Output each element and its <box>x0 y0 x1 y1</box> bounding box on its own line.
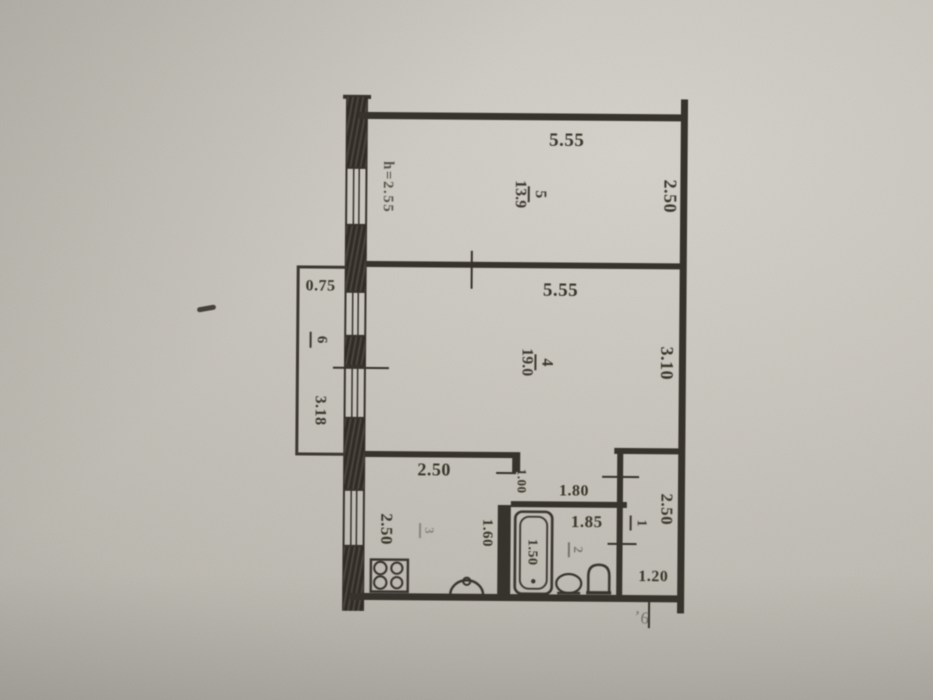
room5-number: 5 <box>528 186 548 202</box>
kitchen-sink-icon <box>448 577 485 596</box>
kitchen-window-icon <box>343 489 365 547</box>
ceiling-height-note: h=2.55 <box>380 161 395 213</box>
toilet-icon <box>584 562 613 595</box>
hallway-number: 1 <box>630 516 648 531</box>
balcony-wall-bottom <box>295 452 345 455</box>
dim-hallway-width: 1.20 <box>638 569 668 585</box>
vent-shaft <box>497 505 511 596</box>
dim-hallway-depth: 2.50 <box>658 493 675 525</box>
dim-kitchen-width: 2.50 <box>417 460 451 478</box>
room-tag-living4: 4 19.0 <box>517 348 554 376</box>
wall-pier <box>343 419 366 489</box>
stove-icon <box>369 558 409 593</box>
balcony-number: 6 <box>310 332 329 348</box>
dim-room5-width: 5.55 <box>549 131 584 150</box>
wall-right-exterior <box>677 99 688 613</box>
floor-plan: 5.55 2.50 h=2.55 5.55 3.10 0.75 3.18 2.5… <box>0 0 933 700</box>
window-icon <box>344 291 366 337</box>
handwritten-note: ’6 <box>633 607 652 629</box>
door-tick-hallway-upper <box>602 476 639 478</box>
wall-pier <box>345 226 368 291</box>
wall-hallway-top <box>614 448 678 455</box>
wall-pier <box>344 337 366 365</box>
room-tag-kitchen: 3 <box>419 523 436 538</box>
room-tag-balcony: 6 <box>310 332 329 348</box>
door-tick-room5-room4 <box>471 251 473 289</box>
wall-top-exterior <box>359 112 688 122</box>
dim-room5-depth: 2.50 <box>661 180 679 214</box>
room-tag-bathroom: 2 <box>568 542 585 557</box>
washbasin-icon <box>553 571 584 595</box>
dim-bathtub-length: 1.50 <box>524 539 538 566</box>
exterior-window-wall <box>342 95 368 611</box>
wall-pier <box>346 97 369 167</box>
wall-room5-room4-divider <box>367 261 680 269</box>
dim-balcony-length: 3.18 <box>311 396 327 426</box>
balcony-wall-left <box>295 265 299 455</box>
dimension-tick-passage <box>496 472 516 474</box>
room-tag-hallway: 1 <box>630 516 648 531</box>
dim-kitchen-depth: 2.50 <box>378 513 395 545</box>
window-icon <box>345 167 367 226</box>
wall-hallway-left <box>616 448 623 595</box>
room4-area: 19.0 <box>517 348 534 376</box>
wall-kitchen-top <box>365 451 519 458</box>
room-tag-living5: 5 13.9 <box>511 180 548 208</box>
wall-bathroom-top <box>511 501 627 508</box>
dimension-tick-balcony <box>333 367 389 369</box>
dim-bathroom-width: 1.80 <box>559 483 589 499</box>
dim-bathroom-inner: 1.85 <box>571 513 603 530</box>
kitchen-number: 3 <box>419 523 436 538</box>
dim-room4-width: 5.55 <box>543 281 578 300</box>
balcony-wall-top <box>297 265 347 268</box>
room5-area: 13.9 <box>511 180 528 208</box>
wall-pier <box>342 547 365 611</box>
dim-passage: 1.00 <box>515 469 528 494</box>
floorplan-photo: 5.55 2.50 h=2.55 5.55 3.10 0.75 3.18 2.5… <box>0 0 933 700</box>
balcony-door-window-icon <box>344 365 366 419</box>
bathroom-number: 2 <box>568 542 585 557</box>
dim-room4-depth: 3.10 <box>658 346 676 380</box>
room4-number: 4 <box>534 354 554 370</box>
dim-kitchen-inner: 1.60 <box>479 519 494 547</box>
dim-balcony-width: 0.75 <box>306 278 336 294</box>
door-tick-hallway-lower <box>608 543 637 545</box>
